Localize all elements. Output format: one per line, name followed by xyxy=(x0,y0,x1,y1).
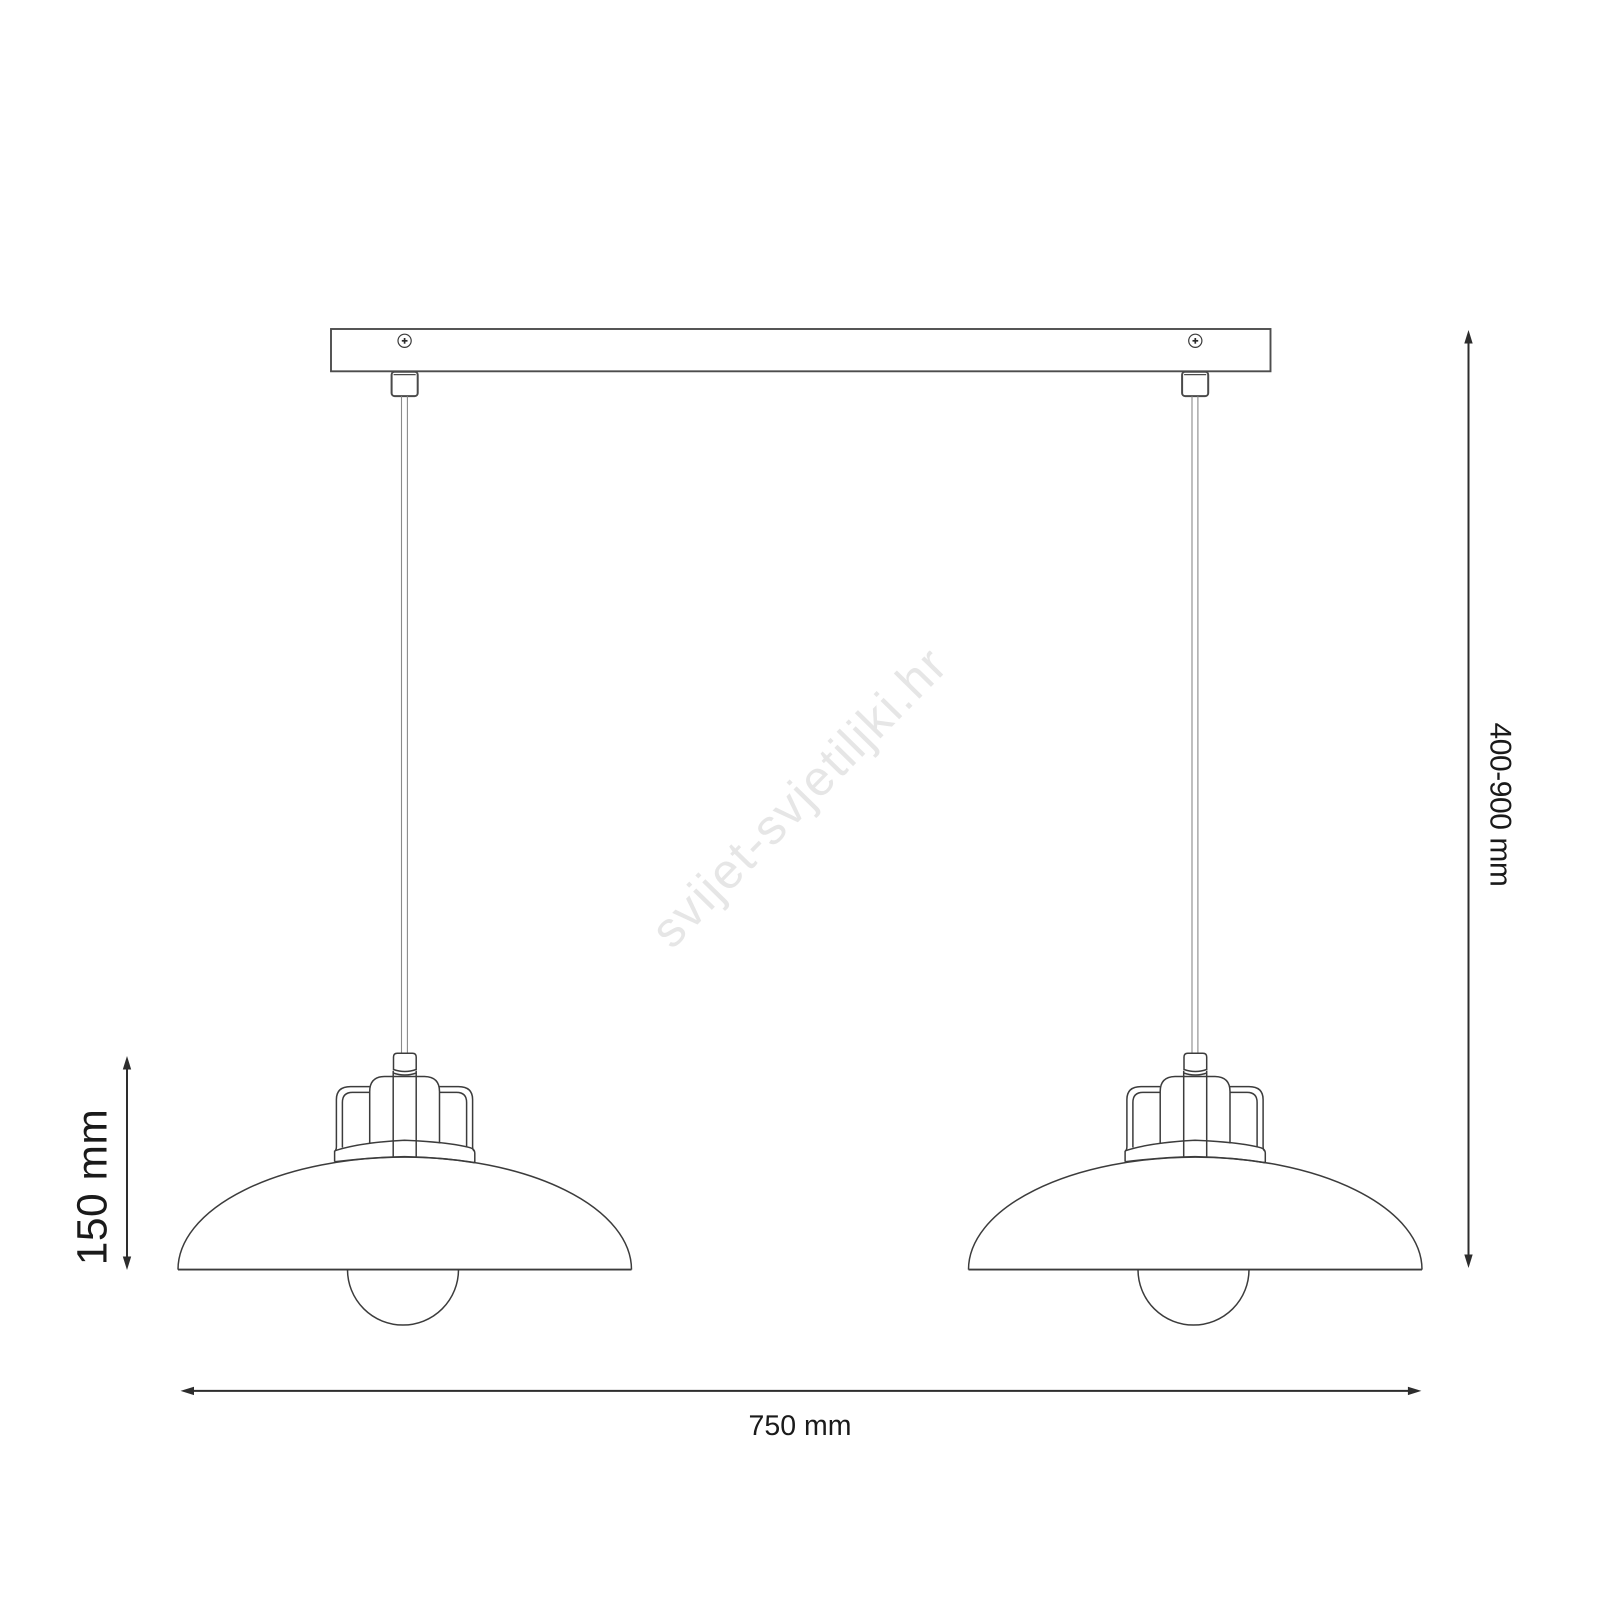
svg-text:750 mm: 750 mm xyxy=(749,1410,852,1442)
svg-text:150 mm: 150 mm xyxy=(70,1109,117,1266)
svg-text:400-900 mm: 400-900 mm xyxy=(1484,723,1517,887)
